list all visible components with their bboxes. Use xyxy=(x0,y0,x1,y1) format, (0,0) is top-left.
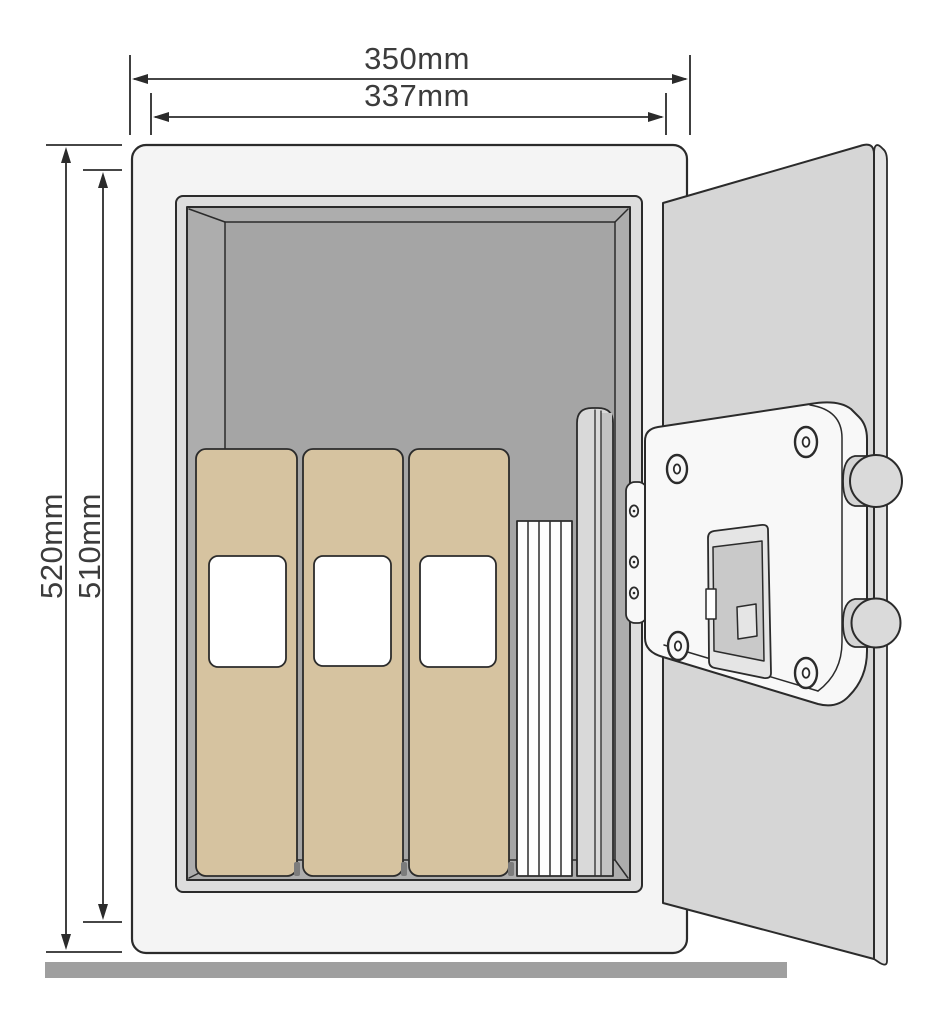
binder-label xyxy=(420,556,496,667)
locking-bolt-1 xyxy=(843,455,902,507)
arrowhead-top xyxy=(61,147,71,163)
keypad-display xyxy=(713,541,764,661)
dim-label-inner-width: 337mm xyxy=(364,78,470,113)
bolt-face xyxy=(850,455,902,507)
panel-screw-top-right xyxy=(795,427,817,457)
hinge-screw xyxy=(630,556,638,567)
dim-label-outer-width: 350mm xyxy=(364,41,470,76)
hinge-screw xyxy=(630,505,638,516)
safe-dimension-diagram: 350mm 337mm 520mm 510mm xyxy=(0,0,931,1024)
arrowhead-bottom xyxy=(61,934,71,950)
keypad xyxy=(706,525,771,678)
floor-bar xyxy=(45,962,787,978)
arrowhead-right xyxy=(648,112,664,122)
paper-stack-body xyxy=(517,521,572,876)
arrowhead-top xyxy=(98,172,108,188)
door-edge xyxy=(874,145,887,964)
panel-screw-bottom-right xyxy=(795,658,817,688)
panel-screw-top-left xyxy=(667,455,687,483)
dim-height-inner: 510mm xyxy=(72,170,122,922)
hinge-plate xyxy=(626,482,647,623)
keypad-latch xyxy=(706,589,716,619)
binder-label xyxy=(314,556,391,666)
dim-label-inner-height: 510mm xyxy=(72,493,107,599)
arrowhead-right xyxy=(672,74,688,84)
diagram-canvas: 350mm 337mm 520mm 510mm xyxy=(0,0,931,1024)
arrowhead-bottom xyxy=(98,904,108,920)
dim-width-inner: 337mm xyxy=(151,78,666,135)
binder-2 xyxy=(303,449,403,876)
panel-screw-bottom-left xyxy=(668,632,688,660)
folder xyxy=(577,408,613,876)
keypad-button xyxy=(737,604,757,639)
gap-shadow xyxy=(401,862,407,876)
arrowhead-left xyxy=(153,112,169,122)
gap-shadow xyxy=(294,862,300,876)
lock-panel xyxy=(645,402,867,705)
folder-shade xyxy=(601,413,612,875)
binder-3 xyxy=(409,449,509,876)
gap-shadow xyxy=(508,862,514,876)
hinge-screw xyxy=(630,587,638,598)
locking-bolt-2 xyxy=(843,599,901,648)
hinge xyxy=(626,482,647,623)
binder-label xyxy=(209,556,286,667)
paper-stack xyxy=(517,521,572,876)
arrowhead-left xyxy=(132,74,148,84)
bolt-face xyxy=(852,599,901,648)
binder-1 xyxy=(196,449,297,876)
dim-label-outer-height: 520mm xyxy=(34,493,69,599)
